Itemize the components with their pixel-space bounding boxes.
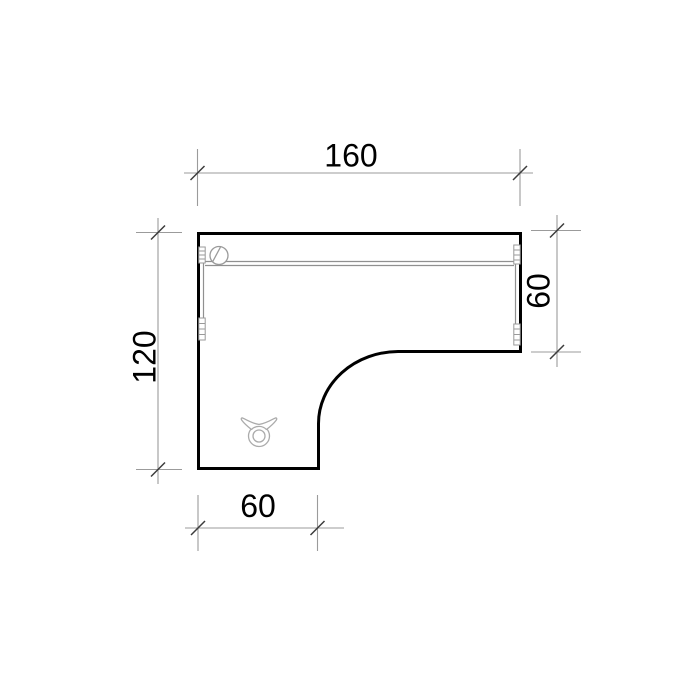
desk-outline [199, 234, 521, 469]
dimension-value-top: 160 [324, 138, 377, 174]
clip-inner-ring [253, 430, 265, 442]
cable-grommet-circle-icon [210, 247, 228, 265]
dimension-left-height: 120 [127, 218, 183, 484]
drawing-canvas: 160 120 60 60 [0, 0, 700, 700]
dimension-bottom-leg-width: 60 [185, 488, 344, 551]
dimension-value-right: 60 [521, 273, 557, 309]
edge-connector-bracket-top-left [199, 247, 205, 263]
dimension-value-left: 120 [127, 330, 163, 383]
desk-plan-drawing: 160 120 60 60 [0, 0, 700, 700]
desk-body [199, 234, 521, 469]
edge-connector-bracket-bottom-right [514, 324, 520, 345]
edge-connector-bracket-bottom-left [199, 318, 205, 340]
edge-connector-bracket-top-right [514, 245, 520, 264]
dimension-top-width: 160 [184, 138, 533, 207]
dimension-right-depth: 60 [521, 215, 582, 367]
dimension-value-bottom: 60 [240, 488, 276, 524]
